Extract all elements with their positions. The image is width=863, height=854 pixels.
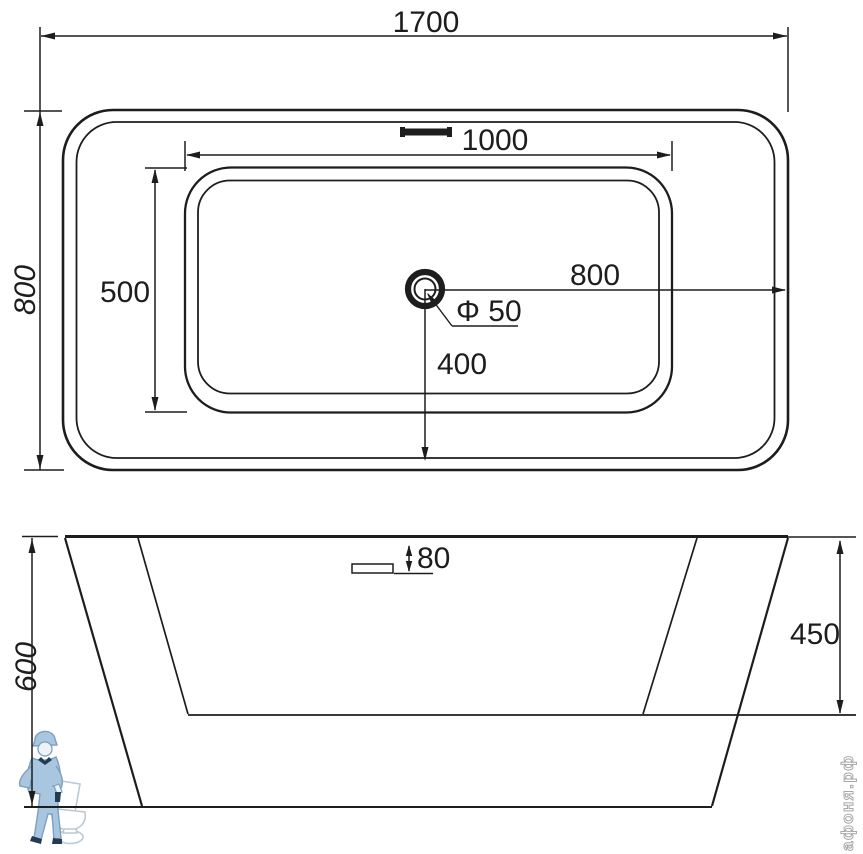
plan-view	[24, 27, 788, 470]
label-overall-length: 1700	[393, 6, 460, 39]
elev-outer-right-slope	[712, 538, 788, 806]
dim-400	[422, 289, 429, 461]
dim-80	[406, 545, 412, 572]
elev-outer-left-slope	[65, 538, 142, 806]
label-basin-length: 1000	[462, 124, 529, 157]
label-overall-height: 600	[10, 642, 43, 692]
watermark-site-text: афоня.рф	[838, 754, 857, 851]
watermark-plumber-logo	[20, 731, 86, 844]
label-basin-depth: 450	[790, 618, 840, 651]
dim-500	[145, 168, 187, 412]
elev-inner-right-slope	[643, 538, 697, 714]
dim-1700	[40, 27, 788, 470]
label-drain-offset-right: 800	[570, 259, 620, 292]
technical-drawing-page: афоня.рф	[0, 0, 863, 854]
label-overall-width: 800	[9, 265, 42, 315]
elev-inner-left-slope	[138, 538, 188, 714]
overflow-slot-elevation	[352, 564, 393, 573]
overflow-slot-plan	[400, 127, 452, 137]
label-drain-offset-bottom: 400	[437, 348, 487, 381]
plumber-icon	[20, 731, 63, 844]
label-drain-diameter: Φ 50	[456, 295, 522, 328]
label-overflow-drop: 80	[417, 542, 450, 575]
label-basin-width: 500	[100, 276, 150, 309]
elevation-view	[22, 537, 856, 808]
